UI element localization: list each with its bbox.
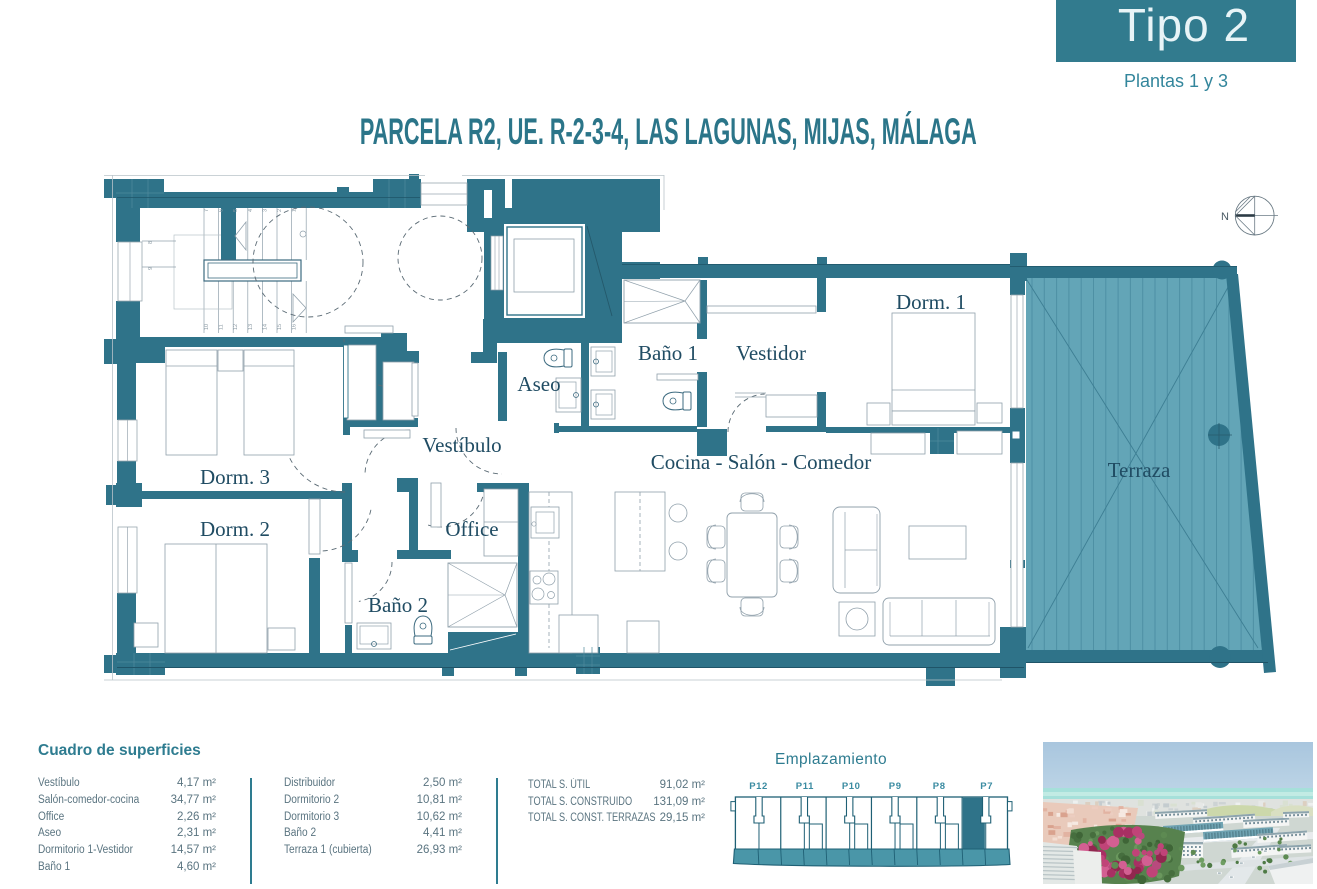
svg-text:Aseo: Aseo [517,372,560,396]
svg-text:16: 16 [292,324,298,330]
svg-text:Dorm. 3: Dorm. 3 [200,465,270,489]
svg-text:13: 13 [248,324,254,330]
svg-text:N: N [1221,211,1229,223]
svg-text:15: 15 [277,324,283,330]
svg-text:P7: P7 [980,781,993,792]
svg-text:Dorm. 2: Dorm. 2 [200,517,270,541]
svg-text:Dorm. 1: Dorm. 1 [896,290,966,314]
svg-text:7: 7 [204,209,210,212]
svg-text:11: 11 [219,324,225,330]
svg-text:14: 14 [262,324,268,330]
svg-text:9: 9 [148,267,154,270]
svg-text:3: 3 [262,209,268,212]
svg-text:Baño 2: Baño 2 [368,593,428,617]
svg-text:Terraza: Terraza [1108,458,1171,482]
svg-text:2: 2 [277,209,283,212]
svg-text:1: 1 [292,209,298,212]
svg-text:6: 6 [219,209,225,212]
svg-text:P10: P10 [842,781,861,792]
svg-text:P9: P9 [889,781,902,792]
svg-text:P12: P12 [749,781,768,792]
svg-text:Vestidor: Vestidor [736,341,806,365]
svg-text:Vestíbulo: Vestíbulo [422,433,501,457]
svg-text:P11: P11 [796,781,814,792]
svg-text:5: 5 [233,209,239,212]
svg-text:4: 4 [248,209,254,212]
svg-text:12: 12 [233,324,239,330]
svg-text:Office: Office [445,517,498,541]
svg-text:Emplazamiento: Emplazamiento [775,751,887,768]
svg-text:8: 8 [148,241,154,244]
svg-text:Cocina - Salón - Comedor: Cocina - Salón - Comedor [651,450,871,474]
svg-text:P8: P8 [933,781,946,792]
svg-text:10: 10 [204,324,210,330]
svg-text:Baño 1: Baño 1 [638,341,698,365]
